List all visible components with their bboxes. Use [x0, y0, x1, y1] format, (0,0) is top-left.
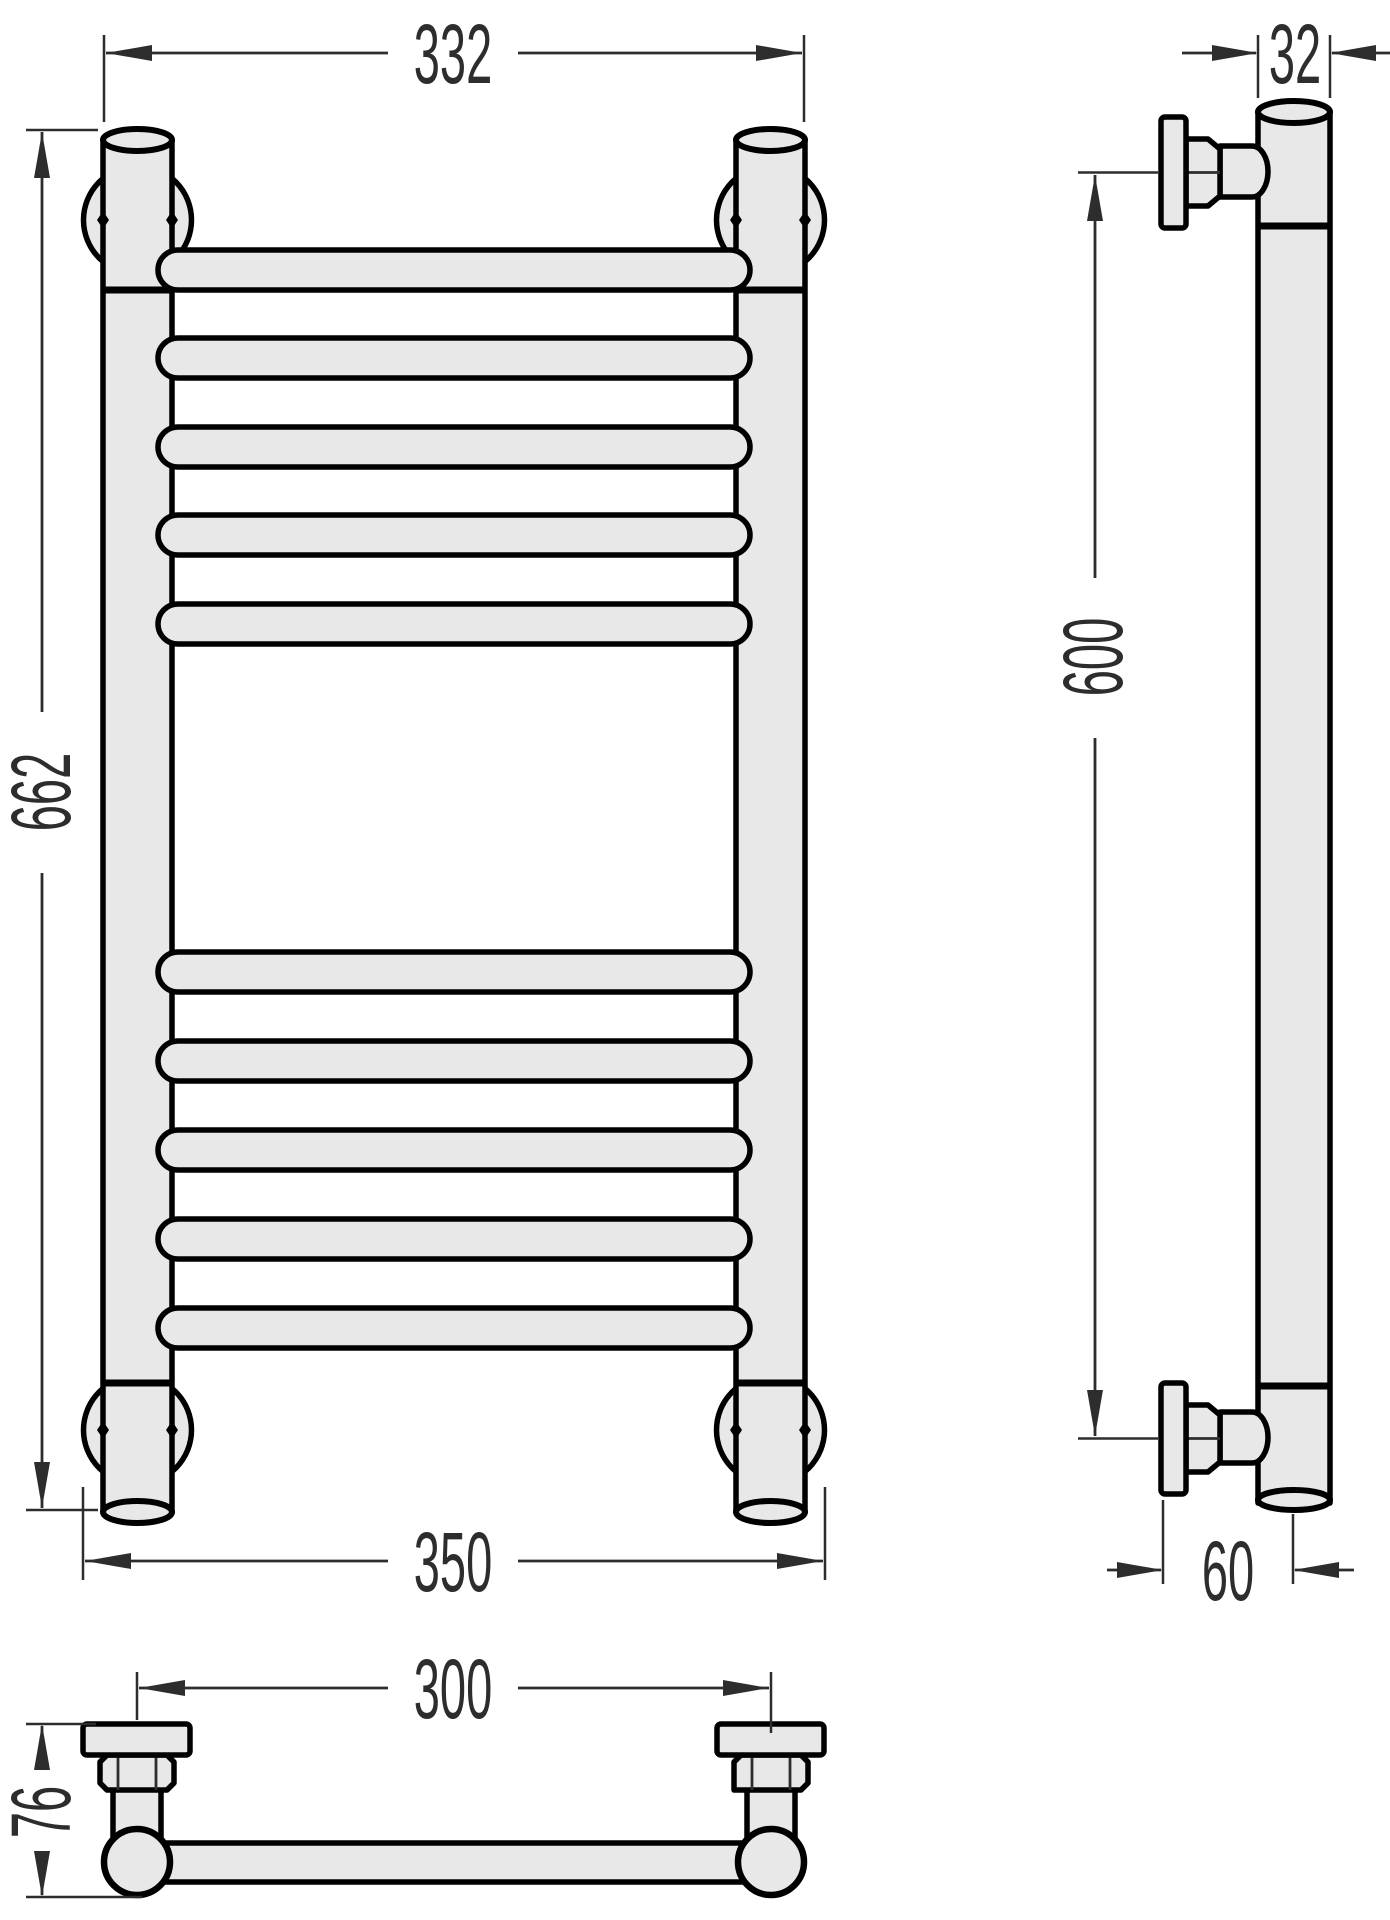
dim-front-width-bottom-label: 350 [414, 1516, 492, 1610]
rung [158, 250, 750, 290]
technical-drawing-page: 332 662 350 [0, 0, 1390, 1920]
arrowhead-left [85, 1553, 131, 1569]
arrowhead-down [34, 1462, 50, 1508]
right-post-top-cap [736, 129, 805, 151]
dim-front-width-top-label: 332 [414, 8, 492, 102]
arrowhead-right [1117, 1562, 1163, 1578]
arrowhead-right [723, 1680, 769, 1696]
right-elbow-union [738, 1829, 804, 1895]
dim-front-width-bottom: 350 [83, 1487, 825, 1610]
side-view: 32 600 60 [1047, 8, 1390, 1619]
arrowhead-left [106, 45, 152, 61]
dim-bottom-axis-spacing-label: 300 [414, 1643, 492, 1737]
left-post-bottom-cap [103, 1501, 172, 1523]
dim-bottom-depth-label: 76 [0, 1786, 89, 1838]
rung [158, 515, 750, 555]
dim-front-width-top: 332 [104, 8, 804, 122]
front-view: 332 662 350 [0, 8, 825, 1610]
arrowhead-up [34, 132, 50, 178]
rung [158, 427, 750, 467]
arrowhead-right [777, 1553, 823, 1569]
rung [158, 338, 750, 378]
arrowhead-left [139, 1680, 185, 1696]
bottom-tube [140, 1843, 768, 1882]
left-elbow-union [104, 1829, 170, 1895]
bottom-bracket-connector [1220, 1412, 1268, 1463]
top-bracket-wall-plate [1161, 117, 1186, 228]
dim-front-height: 662 [0, 130, 98, 1510]
rung [158, 1308, 750, 1348]
dim-side-wall-offset-label: 60 [1202, 1525, 1254, 1619]
rung [158, 1130, 750, 1170]
bottom-bracket-wall-plate [1161, 1383, 1186, 1494]
arrowhead-up [34, 1724, 50, 1770]
arrowhead-right [1212, 45, 1258, 61]
rung [158, 1041, 750, 1081]
dim-side-wall-offset: 60 [1107, 1500, 1354, 1619]
dim-side-pipe-diameter-label: 32 [1269, 8, 1321, 102]
arrowhead-left [1293, 1562, 1339, 1578]
arrowhead-down [1087, 1390, 1103, 1436]
side-pipe-bottom-cap [1258, 1490, 1330, 1510]
bottom-view: 300 76 [0, 1643, 824, 1897]
left-nut [100, 1755, 174, 1790]
dim-bottom-axis-spacing: 300 [137, 1643, 771, 1737]
right-post-bottom-cap [736, 1501, 805, 1523]
radiator-dimension-drawing: 332 662 350 [0, 0, 1390, 1920]
left-post-top-cap [103, 129, 172, 151]
rung [158, 1219, 750, 1259]
right-nut [734, 1755, 808, 1790]
side-pipe-top-cap [1258, 101, 1330, 123]
arrowhead-down [34, 1851, 50, 1897]
arrowhead-left [1330, 45, 1376, 61]
arrowhead-up [1087, 175, 1103, 221]
dim-side-pipe-diameter: 32 [1182, 8, 1390, 102]
left-wall-plate [83, 1724, 190, 1755]
side-pipe [1258, 112, 1330, 1503]
top-bracket-connector [1220, 146, 1268, 197]
arrowhead-right [756, 45, 802, 61]
dim-side-bracket-spacing: 600 [1047, 173, 1158, 1439]
rung [158, 604, 750, 644]
dim-front-height-label: 662 [0, 753, 89, 831]
dim-side-bracket-spacing-label: 600 [1047, 618, 1141, 696]
rung [158, 952, 750, 992]
